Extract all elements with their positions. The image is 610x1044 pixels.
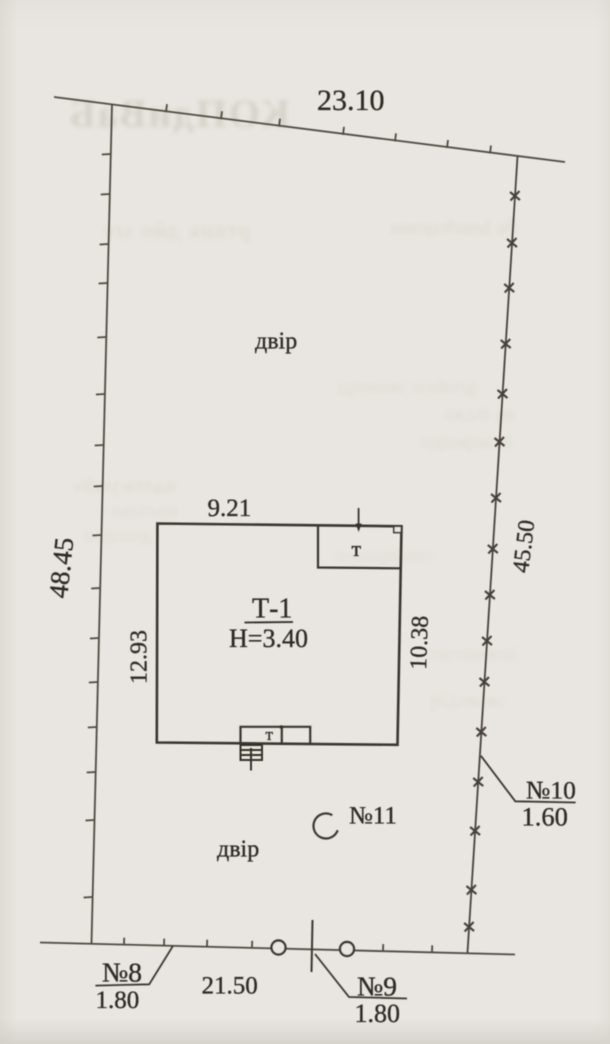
- svg-text:1.60: 1.60: [522, 802, 568, 832]
- svg-text:10.38: 10.38: [406, 615, 434, 670]
- svg-text:Н=3.40: Н=3.40: [229, 624, 308, 653]
- svg-text:т: т: [266, 725, 274, 744]
- svg-text:1.80: 1.80: [96, 987, 140, 1014]
- svg-text:№8: №8: [102, 957, 142, 988]
- svg-text:Т-1: Т-1: [252, 594, 292, 625]
- svg-text:№11: №11: [349, 803, 397, 830]
- svg-text:45.50: 45.50: [508, 519, 540, 575]
- svg-text:№10: №10: [526, 776, 576, 805]
- svg-text:12.93: 12.93: [127, 630, 153, 684]
- svg-text:48.45: 48.45: [43, 536, 79, 600]
- svg-text:9.21: 9.21: [208, 495, 252, 522]
- svg-text:двір: двір: [217, 837, 259, 863]
- svg-text:23.10: 23.10: [317, 84, 385, 117]
- svg-text:№9: №9: [357, 971, 397, 1002]
- svg-text:21.50: 21.50: [202, 973, 258, 1000]
- svg-text:т: т: [352, 536, 362, 561]
- svg-text:1.80: 1.80: [355, 999, 401, 1028]
- svg-text:двір: двір: [255, 329, 297, 355]
